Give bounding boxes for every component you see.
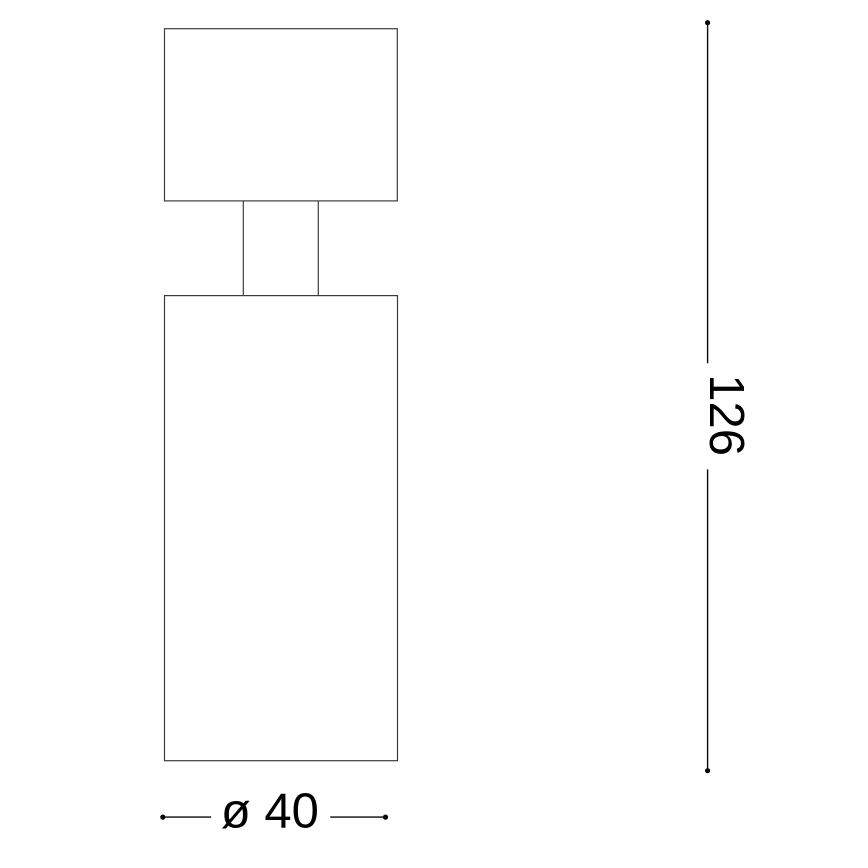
svg-text:126: 126	[699, 374, 753, 456]
svg-text:ø 40: ø 40	[221, 785, 319, 839]
